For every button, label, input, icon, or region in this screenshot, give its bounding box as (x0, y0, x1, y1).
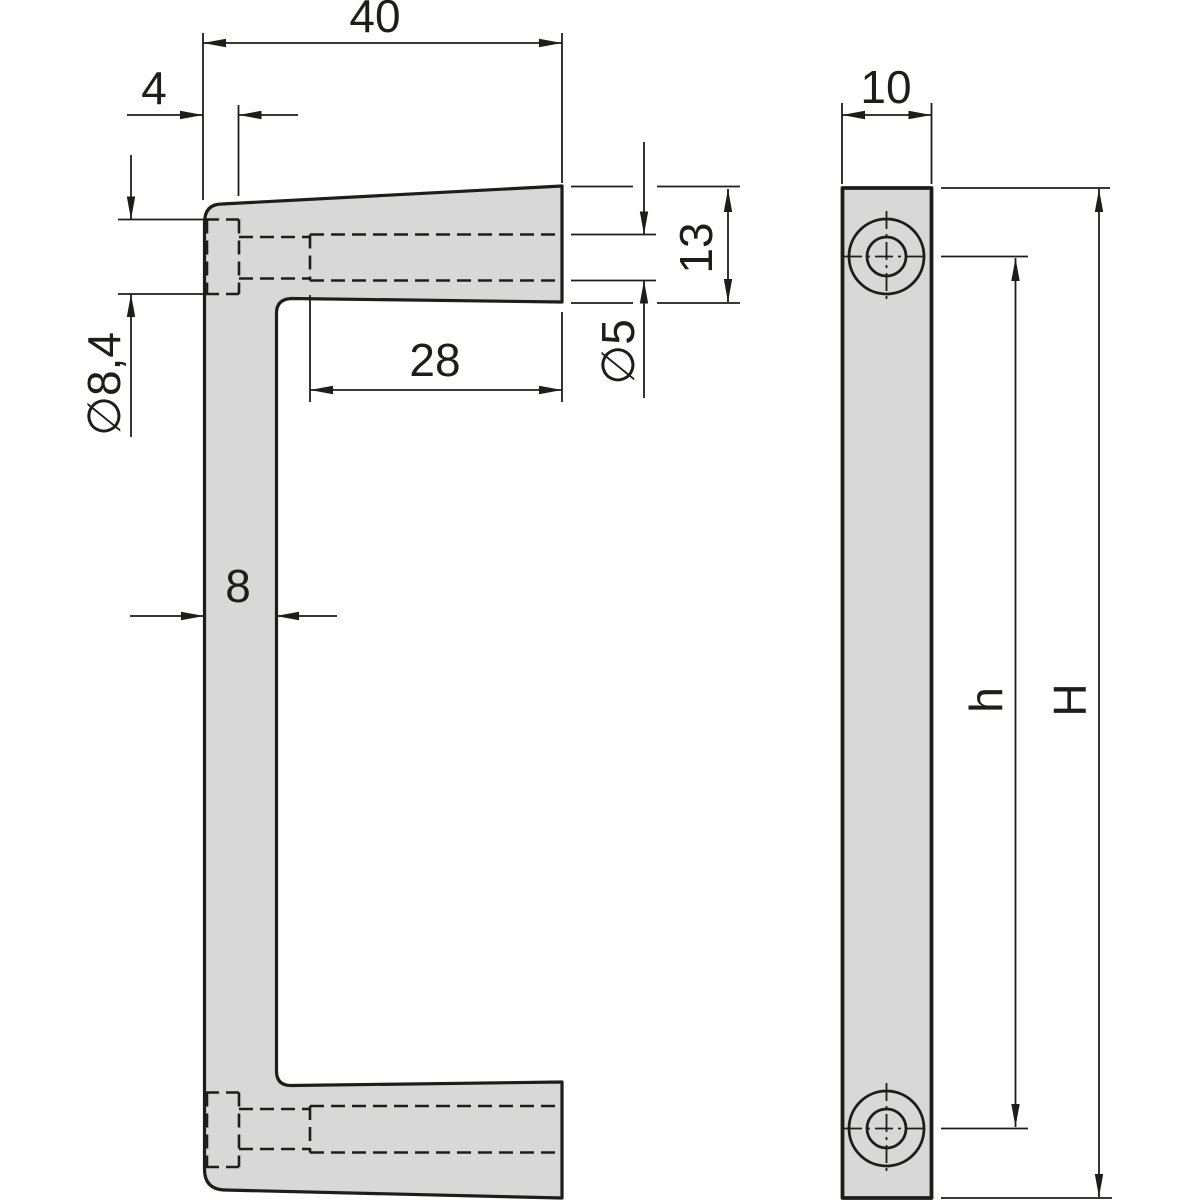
arrowhead (640, 212, 648, 235)
technical-drawing-canvas: 40 4 ∅8,4 28 (0, 0, 1200, 1200)
dim-hole-diameter: ∅5 (571, 142, 656, 398)
arrowhead (724, 279, 732, 302)
dim-hole-depth: 28 (310, 295, 562, 402)
dim-label-total-height: H (1044, 683, 1096, 716)
dim-end-height: 13 (571, 187, 740, 304)
handle-profile-outline (205, 186, 563, 1198)
arrowhead (909, 111, 932, 119)
arrowhead (127, 197, 135, 220)
dim-counterbore-depth: 4 (127, 62, 298, 196)
arrowhead (724, 189, 732, 212)
dim-label-grip-thickness: 8 (225, 560, 251, 612)
dim-label-profile-width: 10 (860, 61, 911, 113)
dim-overall-width: 40 (203, 0, 562, 200)
arrowhead (640, 281, 648, 304)
profile-bar-outline (843, 188, 932, 1198)
arrowhead (1011, 1104, 1019, 1127)
dim-label-hole-depth: 28 (409, 334, 460, 386)
dim-label-end-height: 13 (670, 222, 722, 273)
dim-label-overall-width: 40 (349, 0, 400, 42)
arrowhead (181, 612, 204, 620)
arrowhead (127, 294, 135, 317)
technical-drawing: 40 4 ∅8,4 28 (0, 0, 1200, 1200)
dim-grip-thickness: 8 (130, 560, 337, 620)
arrowhead (239, 111, 262, 119)
front-view: 10 h H (842, 61, 1112, 1198)
dim-label-counterbore-depth: 4 (141, 62, 167, 114)
dim-label-hole-center-distance: h (960, 687, 1012, 713)
arrowhead (203, 39, 226, 47)
side-view: 40 4 ∅8,4 28 (78, 0, 740, 1198)
dim-label-counterbore-diameter: ∅8,4 (78, 332, 130, 436)
arrowhead (1095, 189, 1103, 212)
dim-counterbore-diameter: ∅8,4 (78, 155, 204, 437)
arrowhead (276, 612, 299, 620)
arrowhead (539, 39, 562, 47)
arrowhead (539, 386, 562, 394)
arrowhead (310, 386, 333, 394)
arrowhead (180, 111, 203, 119)
arrowhead (1095, 1174, 1103, 1197)
dim-hole-center-distance: h (941, 257, 1028, 1129)
dim-label-hole-diameter: ∅5 (592, 319, 644, 385)
arrowhead (1011, 258, 1019, 281)
dim-profile-width: 10 (842, 61, 932, 184)
